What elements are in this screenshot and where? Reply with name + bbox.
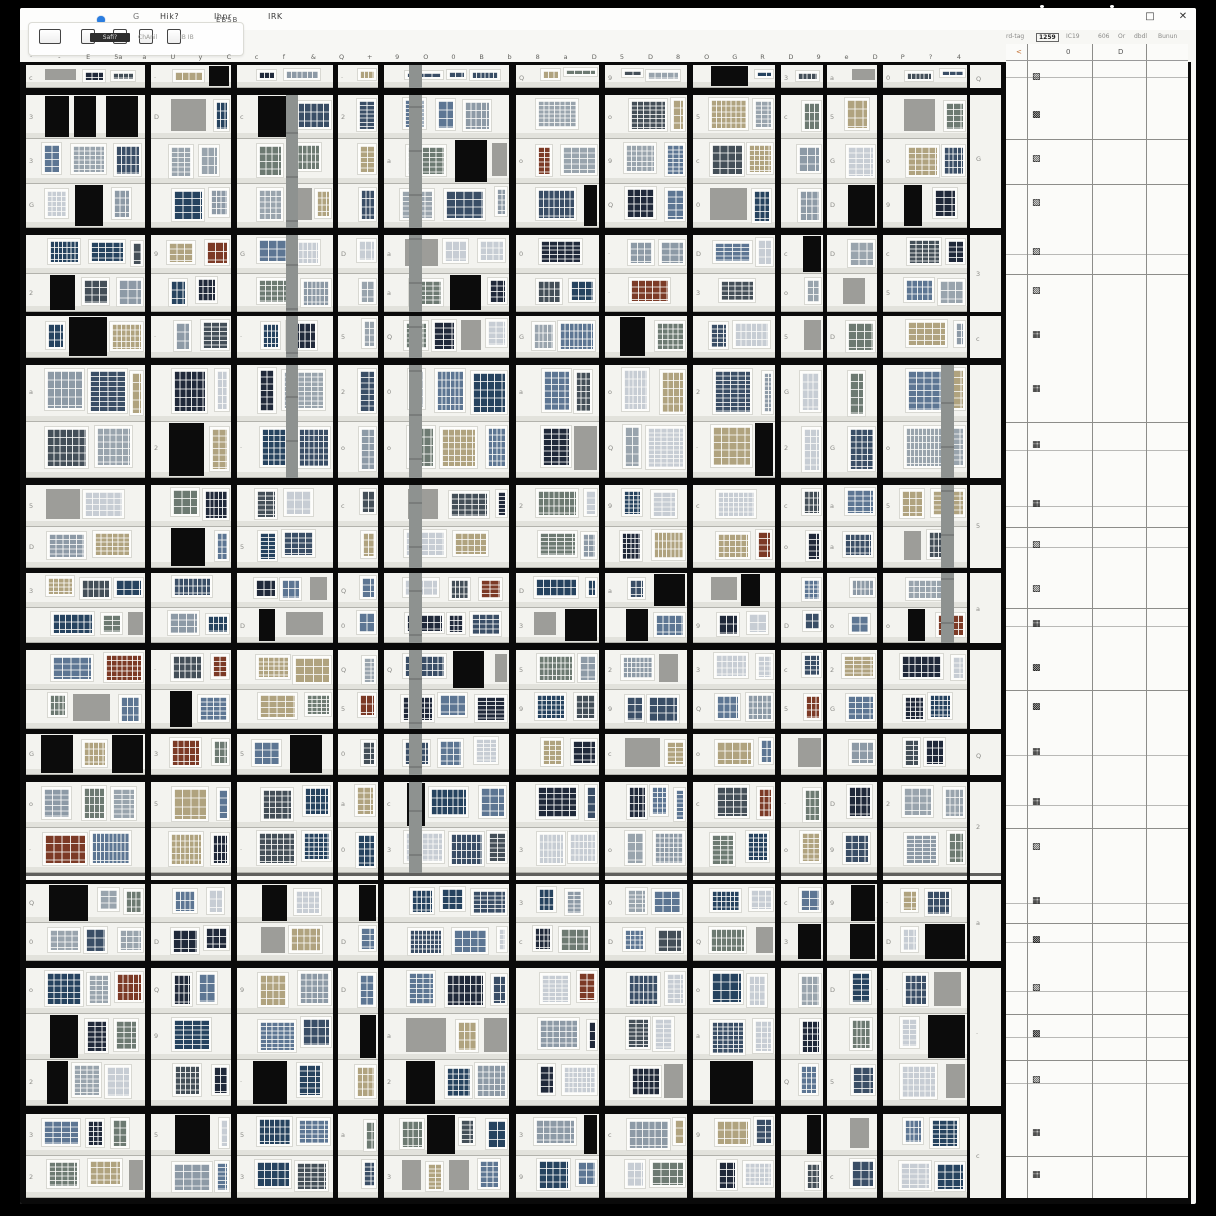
- window: [43, 833, 87, 864]
- window: [804, 694, 821, 719]
- window: [284, 69, 320, 80]
- window: [848, 427, 875, 471]
- floor-line: [693, 421, 775, 422]
- wall-panel: [492, 143, 507, 175]
- facade-cell: c: [605, 734, 687, 775]
- window: [620, 531, 642, 561]
- window: [568, 832, 597, 863]
- window-opening: [710, 1061, 753, 1104]
- row-glyph: a: [387, 289, 391, 297]
- facade-cell: o: [605, 782, 687, 873]
- window: [255, 489, 277, 519]
- menu-item-2[interactable]: IRK: [268, 12, 283, 21]
- printer-icon[interactable]: [39, 29, 61, 44]
- window-opening: [755, 423, 773, 477]
- floor-line: [151, 689, 231, 690]
- row-glyph: a: [519, 388, 523, 396]
- row-glyph: a: [341, 1131, 345, 1139]
- floor-line: [781, 183, 823, 184]
- floor-line: [237, 689, 333, 690]
- window: [747, 612, 767, 634]
- facade-cell: [26, 316, 145, 358]
- floor-line: [384, 183, 509, 184]
- window: [110, 322, 143, 351]
- window: [475, 695, 507, 722]
- grid-vline: [967, 62, 970, 1198]
- table-header-1[interactable]: 0: [1066, 48, 1070, 56]
- window: [715, 740, 753, 766]
- window: [848, 371, 866, 416]
- floor-line: [605, 183, 687, 184]
- window: [118, 928, 143, 952]
- facade-cell: c: [237, 95, 333, 228]
- facade-cell: a2: [384, 968, 509, 1106]
- window: [88, 369, 127, 413]
- window: [581, 532, 597, 559]
- floor-line: [605, 421, 687, 422]
- window: [655, 321, 685, 350]
- tab-IC19[interactable]: IC19: [1066, 33, 1080, 40]
- window: [201, 320, 229, 349]
- window: [211, 654, 229, 680]
- floor-line: [151, 138, 231, 139]
- facade-cell: 2: [338, 95, 378, 228]
- facade-cell: oQ: [605, 365, 687, 478]
- row-glyph: o: [519, 157, 523, 165]
- row-glyph: ·: [154, 666, 156, 674]
- window: [925, 889, 951, 916]
- window: [628, 240, 654, 264]
- floor-line: [338, 827, 378, 828]
- facade-cell: [384, 734, 509, 775]
- facade-cell: 2: [151, 365, 231, 478]
- window-opening: [450, 275, 480, 311]
- facade-cell: 9: [693, 1114, 775, 1198]
- window: [901, 889, 919, 912]
- row-glyph: 9: [608, 502, 612, 510]
- maximize-button[interactable]: □: [1142, 11, 1158, 22]
- window: [294, 889, 321, 916]
- window: [665, 143, 685, 176]
- facade-cell: 5: [151, 782, 231, 873]
- facade-cell: ·D: [883, 884, 967, 961]
- window: [51, 612, 94, 634]
- row-glyph: D: [830, 201, 835, 209]
- row-glyph: 5: [886, 289, 890, 297]
- row-glyph: a: [387, 157, 391, 165]
- tab-dbdl[interactable]: dbdl: [1134, 33, 1147, 40]
- wall-panel: [659, 654, 678, 682]
- window: [478, 1159, 500, 1189]
- window: [539, 239, 582, 264]
- window: [86, 1119, 104, 1147]
- row-glyph: 5: [240, 750, 244, 758]
- facade-cell: Q9: [151, 968, 231, 1106]
- column-header-glyph: 0: [451, 53, 455, 61]
- window: [665, 972, 685, 1005]
- floor-line: [827, 827, 877, 828]
- row-glyph: 5: [976, 522, 980, 530]
- facade-cell: 2·: [693, 365, 775, 478]
- window: [935, 1162, 965, 1191]
- floor-line: [827, 1013, 877, 1014]
- window: [486, 319, 507, 347]
- window: [101, 613, 122, 633]
- floor-line: [26, 526, 145, 527]
- window: [212, 1065, 229, 1095]
- row-glyph: ·: [608, 289, 610, 297]
- window: [904, 833, 938, 865]
- column-header-glyph: 9: [816, 53, 820, 61]
- toolbar-selected-chip[interactable]: Safi?: [90, 33, 130, 42]
- wall-panel: [850, 1118, 869, 1148]
- floor-line: [883, 1059, 967, 1060]
- floor-line: [516, 421, 599, 422]
- window: [802, 489, 821, 515]
- row-glyph: 3: [519, 899, 523, 907]
- facade-cell: [781, 734, 823, 775]
- window: [900, 654, 943, 679]
- wall-panel: [798, 738, 821, 767]
- window: [360, 489, 376, 515]
- row-glyph: c: [696, 800, 700, 808]
- row-glyph: o: [608, 846, 612, 854]
- row-glyph: 2: [154, 444, 158, 452]
- facade-cell: 5GD: [827, 95, 877, 228]
- row-glyph: 5: [154, 800, 158, 808]
- window: [628, 578, 645, 598]
- facade-cell: [151, 573, 231, 643]
- window: [709, 322, 728, 350]
- floor-line: [605, 827, 687, 828]
- window: [845, 98, 869, 129]
- row-glyph: Q: [696, 938, 701, 946]
- facade-cell: o: [693, 734, 775, 775]
- facade-cell: D: [781, 573, 823, 643]
- window: [71, 144, 106, 173]
- window: [51, 655, 93, 681]
- window: [172, 973, 193, 1006]
- window: [850, 1018, 872, 1050]
- window: [169, 832, 203, 866]
- facade-cell: ·: [237, 782, 333, 873]
- facade-cell: D: [151, 884, 231, 961]
- window: [258, 1020, 295, 1053]
- window: [747, 143, 773, 174]
- facade-cell: ·: [151, 316, 231, 358]
- row-glyph: ·: [240, 444, 242, 452]
- wall-panel: [946, 1064, 965, 1098]
- window: [440, 887, 465, 910]
- floor-line: [883, 273, 967, 274]
- facade-cell: ·: [151, 650, 231, 729]
- window-opening: [654, 574, 685, 606]
- facade-cell: a: [827, 65, 877, 88]
- wall-panel: [461, 320, 481, 350]
- window: [47, 1160, 79, 1188]
- floor-line: [827, 607, 877, 608]
- window: [746, 831, 770, 862]
- window: [532, 322, 555, 351]
- window-opening: [106, 96, 139, 137]
- floor-line: [883, 526, 967, 527]
- window: [456, 1020, 478, 1052]
- tab-1259[interactable]: 1259: [1036, 33, 1059, 42]
- row-glyph: 2: [29, 289, 33, 297]
- window: [747, 974, 767, 1007]
- toolbar-caption-2: IB IB: [180, 34, 194, 41]
- column-header-glyph: 5: [620, 53, 624, 61]
- window-opening: [74, 96, 96, 137]
- column-header-glyph: a: [564, 53, 568, 61]
- window: [654, 613, 685, 637]
- table-cell-glyph: ▦: [1032, 620, 1041, 629]
- window: [709, 98, 748, 130]
- wall-panel: [756, 927, 773, 954]
- row-glyph: 0: [608, 899, 612, 907]
- facade-cell: [693, 65, 775, 88]
- window: [534, 577, 578, 598]
- window: [400, 1119, 423, 1149]
- table-header-2[interactable]: D: [1118, 48, 1123, 56]
- facade-cell: ·: [970, 968, 1001, 1106]
- grid-vline: [145, 62, 151, 1198]
- table-cell-glyph: ▩: [1032, 1030, 1041, 1039]
- window: [497, 927, 507, 953]
- row-glyph: o: [886, 622, 890, 630]
- window: [851, 1065, 875, 1095]
- table-row-line: [1006, 690, 1188, 691]
- row-glyph: ·: [784, 800, 786, 808]
- window: [646, 426, 685, 469]
- facade-cell: 2: [516, 485, 599, 568]
- window: [806, 531, 821, 561]
- row-glyph: 5: [240, 543, 244, 551]
- column-header-glyph: Q: [339, 53, 344, 61]
- window: [622, 368, 649, 411]
- row-glyph: a: [696, 1032, 700, 1040]
- row-glyph: o: [830, 622, 834, 630]
- window: [171, 488, 198, 516]
- window: [257, 238, 290, 263]
- window: [624, 143, 657, 173]
- window: [561, 145, 597, 175]
- window: [463, 100, 491, 131]
- floor-line: [151, 922, 231, 923]
- row-glyph: D: [886, 938, 891, 946]
- window: [671, 98, 685, 131]
- window: [901, 927, 918, 952]
- window: [172, 1018, 211, 1052]
- floor-line: [151, 421, 231, 422]
- window: [297, 1063, 322, 1097]
- facade-cell: 3: [26, 573, 145, 643]
- window: [715, 694, 740, 721]
- facade-cell: [605, 968, 687, 1106]
- window: [282, 530, 315, 557]
- row-glyph: 3: [387, 846, 391, 854]
- floor-line: [338, 922, 378, 923]
- floor-line: [693, 138, 775, 139]
- window: [665, 740, 685, 766]
- facade-cell: 5: [237, 734, 333, 775]
- floor-line: [237, 827, 333, 828]
- window: [256, 655, 290, 679]
- window: [83, 490, 124, 518]
- facade-cell: a: [605, 573, 687, 643]
- table-cell-glyph: ▨: [1032, 248, 1041, 257]
- row-glyph: Q: [696, 705, 701, 713]
- floor-line: [693, 827, 775, 828]
- facade-cell: 5: [781, 316, 823, 358]
- facade-cell: G: [970, 95, 1001, 228]
- table-header-0[interactable]: <: [1016, 48, 1022, 56]
- copy-icon[interactable]: [167, 29, 181, 44]
- facade-cell: 5: [883, 485, 967, 568]
- window: [83, 70, 106, 81]
- window: [924, 738, 945, 766]
- floor-line: [26, 273, 145, 274]
- row-glyph: 9: [154, 1032, 158, 1040]
- facade-cell: [516, 734, 599, 775]
- facade-cell: ·o: [781, 782, 823, 873]
- window: [541, 738, 563, 766]
- floor-line: [516, 526, 599, 527]
- window: [537, 887, 556, 912]
- window: [453, 531, 489, 557]
- row-glyph: a: [976, 605, 980, 613]
- floor-line: [883, 827, 967, 828]
- window-opening: [584, 1115, 597, 1154]
- tab-rd-tag[interactable]: rd-tag: [1006, 33, 1024, 40]
- floor-line: [237, 273, 333, 274]
- facade-cell: a: [970, 884, 1001, 961]
- window: [625, 187, 656, 219]
- row-glyph: ·: [886, 899, 888, 907]
- facade-cell: 53: [237, 1114, 333, 1198]
- window: [449, 491, 490, 518]
- facade-cell: 9·: [237, 968, 333, 1106]
- window: [673, 1118, 685, 1145]
- window: [362, 319, 376, 347]
- floor-line: [693, 273, 775, 274]
- facade-cell: 3: [384, 1114, 509, 1198]
- window: [438, 693, 467, 717]
- row-glyph: 2: [886, 800, 890, 808]
- window: [408, 928, 443, 955]
- wall-panel: [449, 1160, 469, 1190]
- app-menu-icon[interactable]: G: [133, 12, 139, 21]
- wall-panel: [664, 1064, 684, 1098]
- window: [301, 1017, 331, 1047]
- window: [576, 1160, 597, 1186]
- wall-panel: [904, 531, 921, 561]
- window: [533, 926, 552, 951]
- facade-cell: [516, 968, 599, 1106]
- window: [89, 240, 125, 263]
- window: [799, 974, 821, 1007]
- window-opening: [259, 609, 275, 641]
- floor-line: [237, 1013, 333, 1014]
- window: [284, 489, 313, 516]
- screen: G □ ✕ Hik?IhnrIRK Safi? ChAnil IB IB EBS…: [0, 0, 1216, 1216]
- column-header-glyph: 9: [395, 53, 399, 61]
- window: [900, 489, 924, 518]
- row-glyph: 3: [29, 113, 33, 121]
- toolbar: [28, 22, 244, 56]
- window: [845, 488, 875, 514]
- floor-line: [781, 273, 823, 274]
- row-glyph: G: [976, 155, 981, 163]
- row-glyph: o: [886, 157, 890, 165]
- tab-Or[interactable]: Or: [1118, 33, 1125, 40]
- facade-cell: 0D: [605, 884, 687, 961]
- floor-line: [151, 1013, 231, 1014]
- window: [623, 928, 645, 951]
- window: [452, 928, 487, 953]
- facade-cell: [693, 316, 775, 358]
- window: [217, 788, 229, 820]
- row-glyph: D: [784, 622, 789, 630]
- facade-cell: 5: [237, 485, 333, 568]
- tab-Bunun[interactable]: Bunun: [1158, 33, 1177, 40]
- window: [432, 320, 456, 351]
- floor-line: [516, 138, 599, 139]
- row-glyph: o: [886, 444, 890, 452]
- row-glyph: 3: [784, 74, 788, 82]
- tab-606[interactable]: 606: [1098, 33, 1109, 40]
- facade-cell: c: [827, 1114, 877, 1198]
- window: [537, 1159, 570, 1190]
- floor-line: [237, 607, 333, 608]
- row-glyph: D: [696, 250, 701, 258]
- column-header-glyph: -: [58, 53, 60, 61]
- window: [899, 1161, 931, 1190]
- menu-item-0[interactable]: Hik?: [160, 12, 179, 21]
- window: [488, 278, 507, 304]
- grid-vline: [1188, 62, 1191, 1198]
- window: [536, 785, 578, 819]
- floor-line: [605, 1155, 687, 1156]
- close-button[interactable]: ✕: [1175, 11, 1191, 22]
- row-glyph: 3: [240, 1173, 244, 1181]
- row-glyph: 5: [784, 333, 788, 341]
- window: [954, 321, 965, 347]
- window: [359, 926, 376, 952]
- table-row-line: [1006, 422, 1188, 423]
- window: [902, 786, 933, 817]
- column-header-glyph: +: [367, 53, 372, 61]
- facade-cell: ·: [883, 968, 967, 1106]
- floor-line: [827, 922, 877, 923]
- facade-cell: 0: [516, 235, 599, 312]
- window: [713, 241, 751, 264]
- facade-cell: c: [605, 1114, 687, 1198]
- floor-line: [151, 183, 231, 184]
- column-header-glyph: D: [592, 53, 597, 61]
- row-glyph: D: [341, 986, 346, 994]
- window: [359, 427, 376, 471]
- floor-line: [781, 1059, 823, 1060]
- window: [627, 973, 660, 1007]
- row-glyph: c: [784, 666, 788, 674]
- window: [205, 240, 229, 265]
- window: [114, 578, 143, 598]
- grid-vline: [20, 62, 26, 1198]
- window: [358, 69, 376, 79]
- row-glyph: 9: [830, 846, 834, 854]
- row-glyph: a: [387, 250, 391, 258]
